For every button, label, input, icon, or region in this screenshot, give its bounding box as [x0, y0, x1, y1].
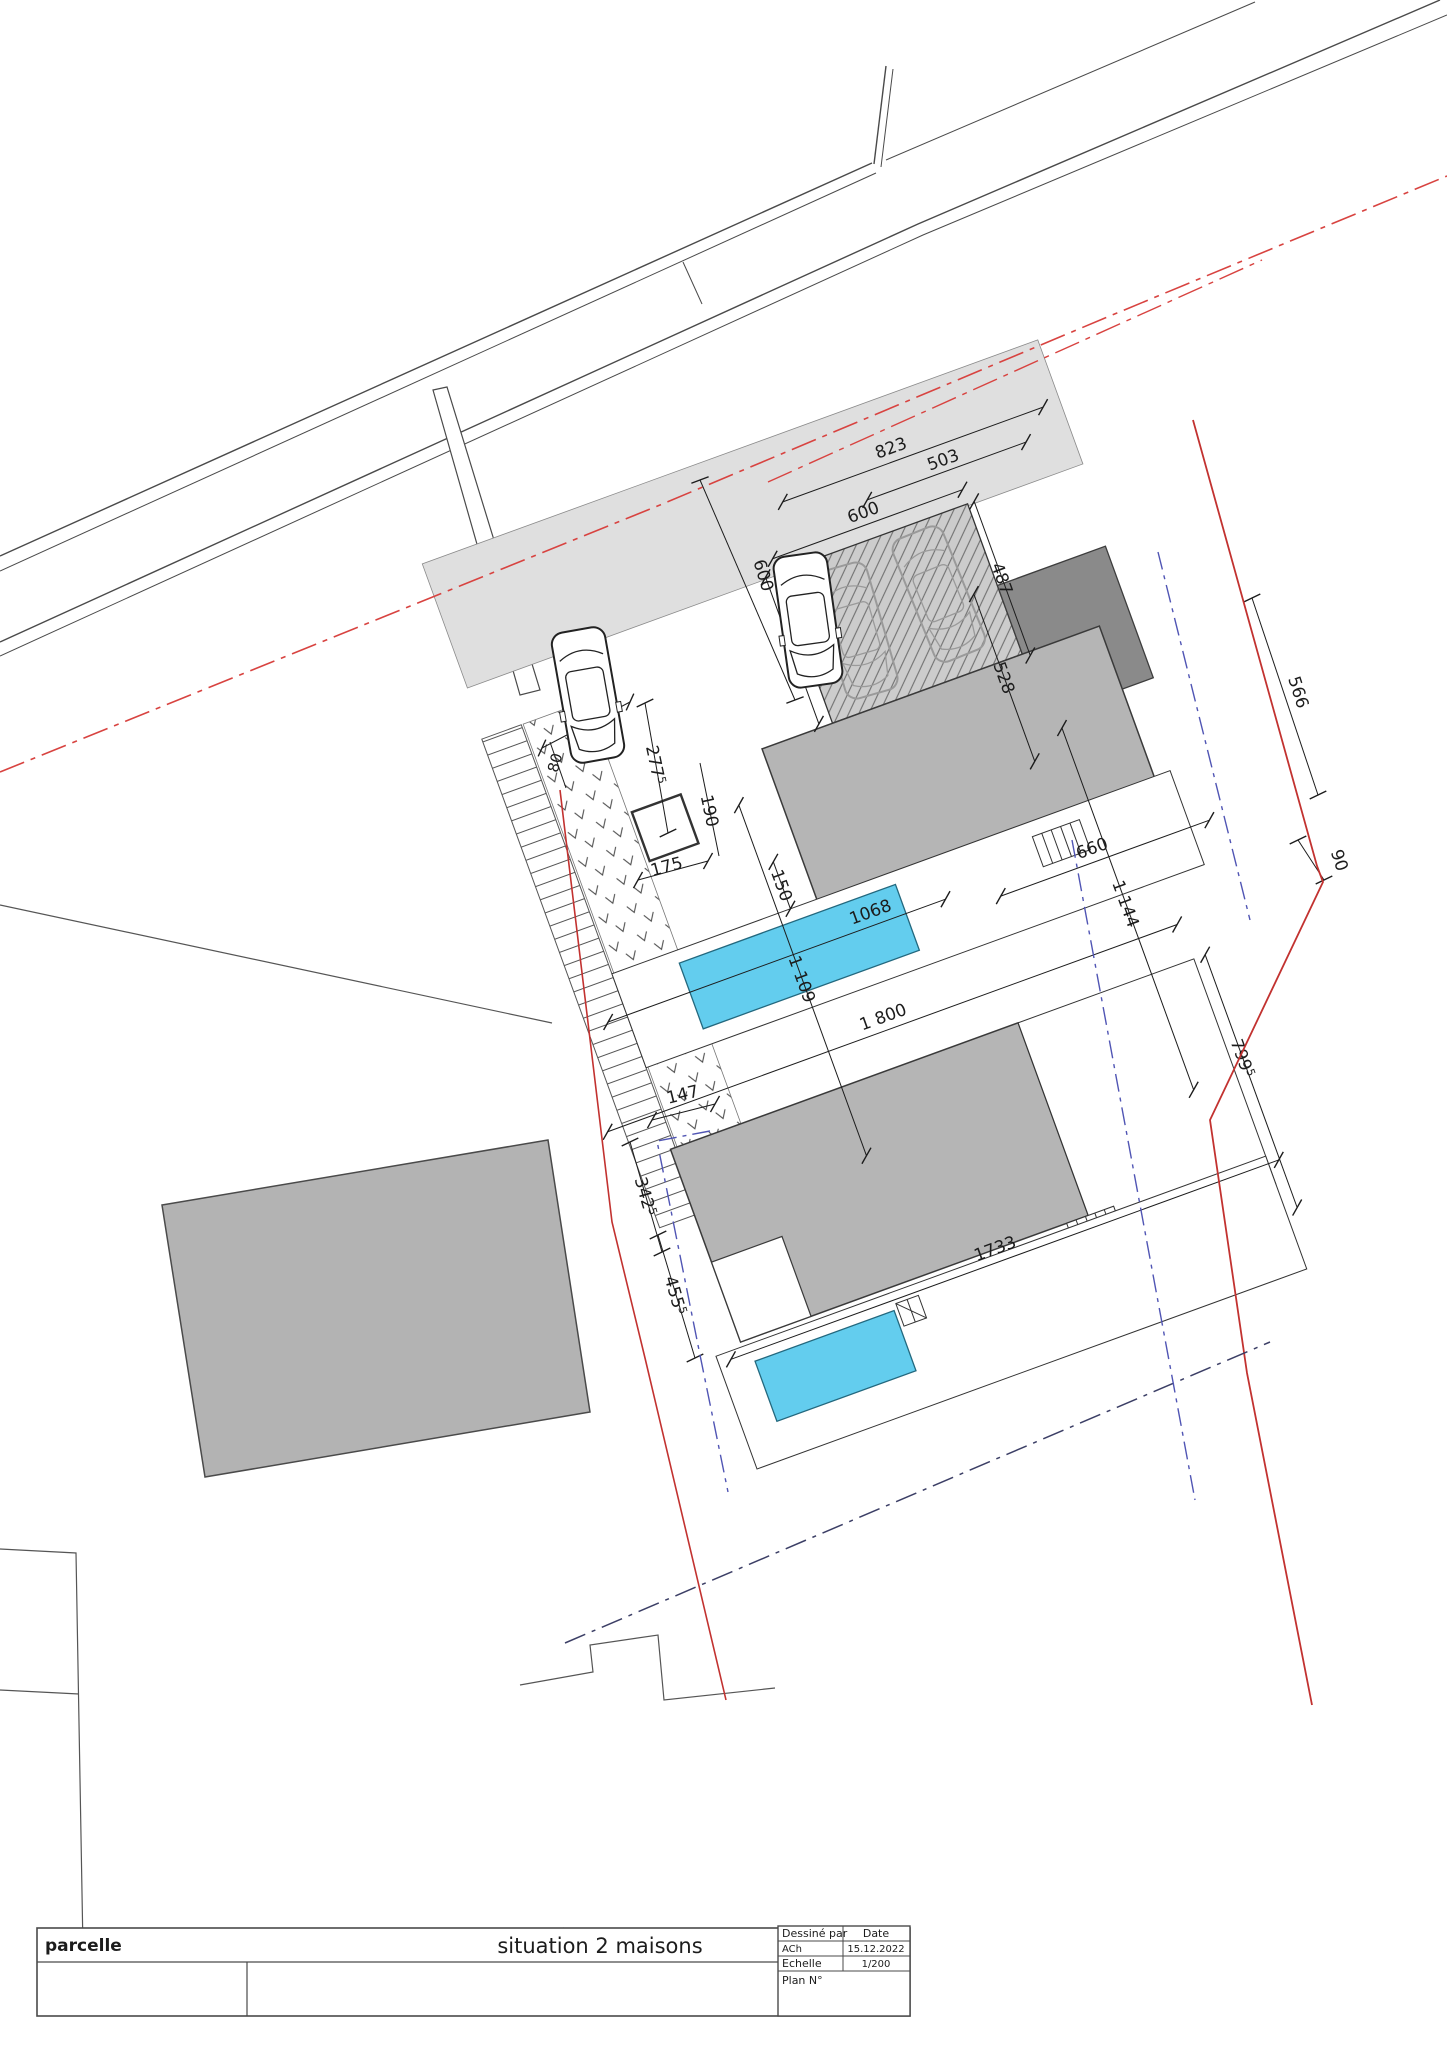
site-plan-canvas: 600 823 503 463 487 528 1068 1 144 150 1… — [0, 0, 1447, 2048]
neighbour-notch-south — [520, 1635, 775, 1700]
drawing-title: situation 2 maisons — [497, 1934, 702, 1958]
neighbour-building — [162, 1140, 590, 1477]
drawn-by-label: Dessiné par — [782, 1927, 848, 1940]
info-table: Dessiné par Date ACh 15.12.2022 Echelle … — [778, 1926, 910, 2016]
dim-190: 190 — [696, 793, 722, 829]
site-plan-sheet: 600 823 503 463 487 528 1068 1 144 150 1… — [0, 0, 1447, 2048]
street-jog-outer — [874, 66, 886, 164]
dim-277: 2775 — [641, 744, 669, 787]
dim-1800: 1 800 — [857, 1000, 910, 1035]
dim-150: 150 — [766, 867, 796, 904]
street-stub — [683, 262, 702, 304]
street-continuation — [886, 2, 1255, 160]
street-jog-inner — [881, 69, 893, 167]
scale-value: 1/200 — [862, 1959, 891, 1970]
drawn-by-value: ACh — [782, 1944, 802, 1955]
date-label: Date — [863, 1927, 890, 1940]
title-block: parcelle situation 2 maisons Dessiné par… — [37, 1926, 910, 2016]
neighbour-line-sw2 — [0, 1690, 79, 1694]
date-value: 15.12.2022 — [847, 1944, 904, 1955]
plan-no-label: Plan N° — [782, 1974, 823, 1987]
scale-label: Echelle — [782, 1957, 822, 1970]
title-block-left-label: parcelle — [45, 1936, 122, 1956]
neighbour-line-west — [0, 905, 552, 1023]
dim-90: 90 — [1326, 847, 1352, 874]
